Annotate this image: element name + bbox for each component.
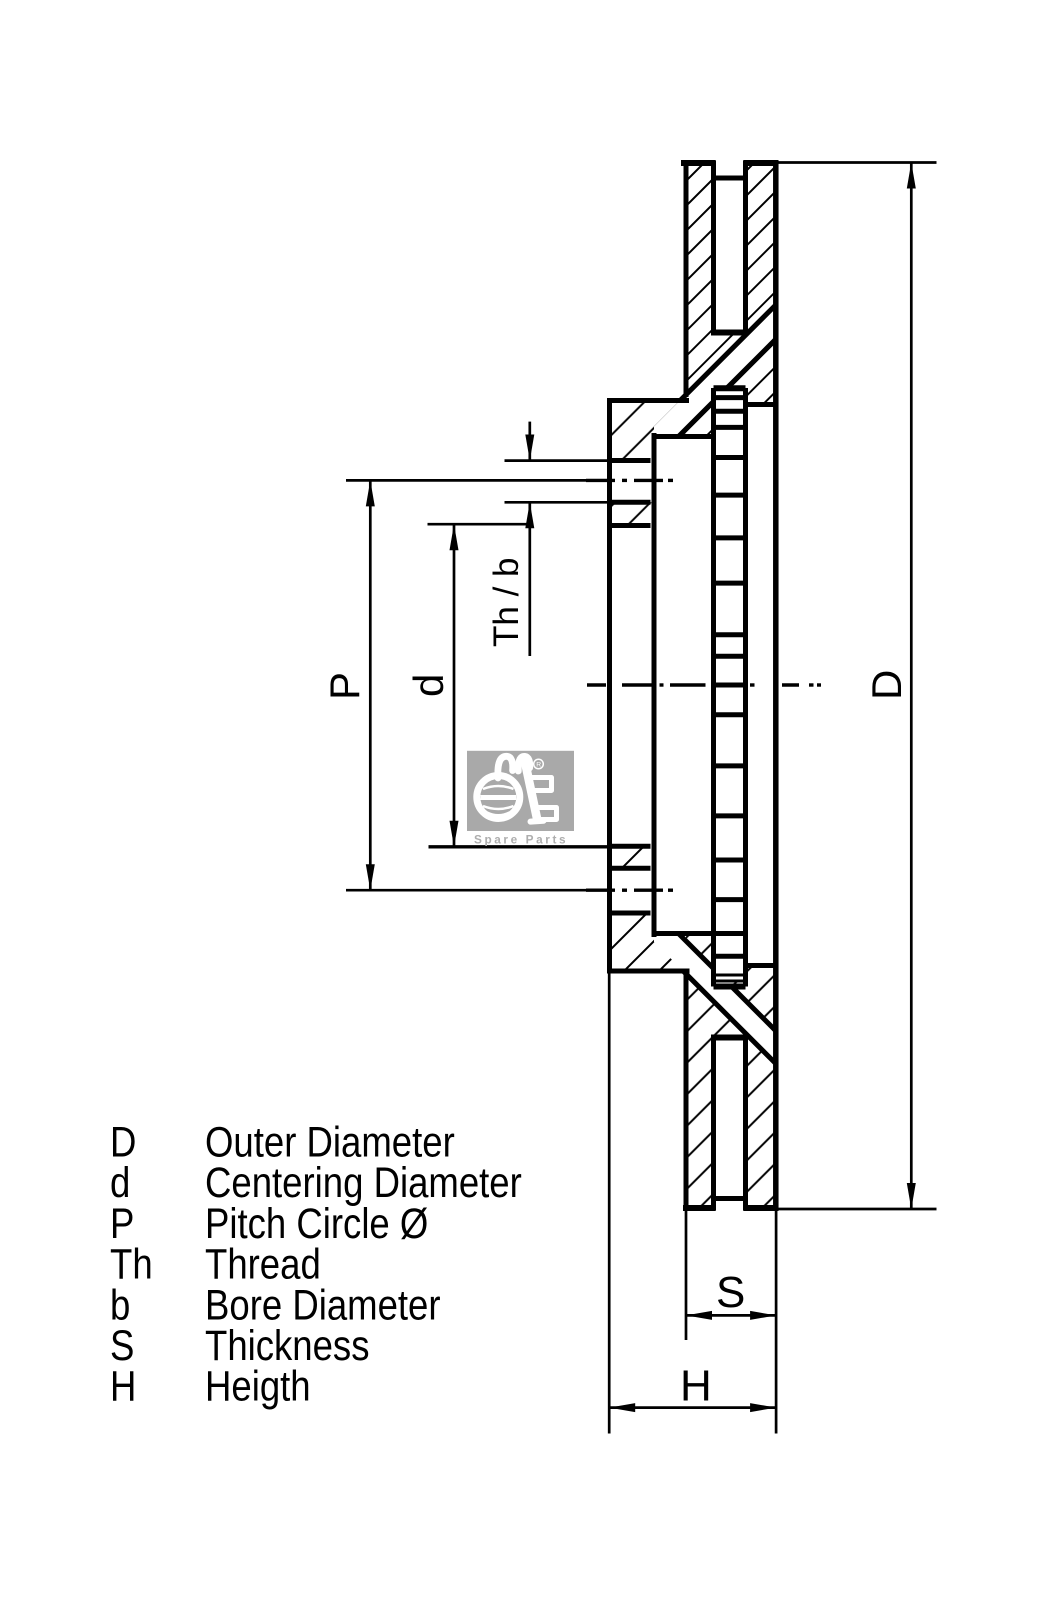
- svg-text:S: S: [716, 1268, 745, 1317]
- svg-text:d: d: [405, 674, 452, 697]
- svg-text:Th / b: Th / b: [487, 558, 526, 647]
- svg-text:Heigth: Heigth: [205, 1363, 311, 1410]
- svg-text:R: R: [536, 762, 541, 769]
- svg-text:P: P: [321, 672, 368, 700]
- svg-text:D: D: [863, 670, 910, 700]
- svg-text:Spare Parts: Spare Parts: [474, 833, 568, 847]
- svg-text:H: H: [680, 1361, 712, 1410]
- svg-text:H: H: [110, 1363, 136, 1410]
